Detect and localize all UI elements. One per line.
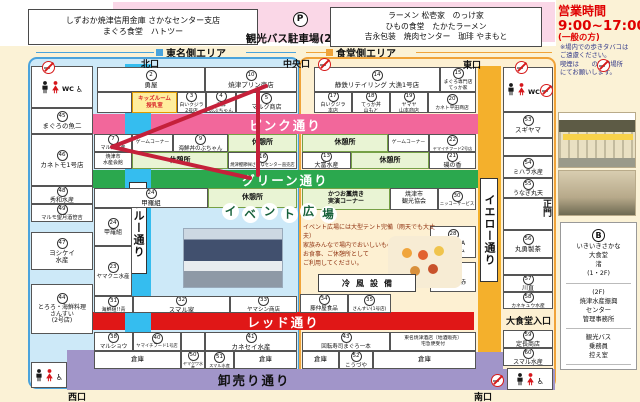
shop-number: 14 bbox=[372, 70, 383, 81]
rest-area-cell: 休憩所 bbox=[228, 134, 297, 152]
no-smoking-icon bbox=[515, 61, 528, 74]
shop-label: 倉庫 bbox=[259, 356, 272, 363]
orange-square-icon bbox=[326, 49, 333, 56]
shop-number: 60 bbox=[523, 348, 534, 359]
shop-label: 宅急便受付 bbox=[421, 342, 445, 347]
street-yellow: イエロー通り bbox=[478, 66, 501, 352]
shop-number: 52 bbox=[351, 351, 362, 362]
shop-cell: 24甲羅組 bbox=[94, 208, 132, 246]
building-photo-2 bbox=[558, 170, 636, 216]
shop-number: 2 bbox=[146, 70, 157, 81]
shop-cell: 倉庫 bbox=[234, 351, 297, 369]
shop-label: さんすい(1号店) bbox=[353, 307, 387, 312]
shop-cell: 焼津市水産会館 bbox=[94, 152, 132, 169]
shop-cell bbox=[97, 92, 132, 113]
shop-cell: 56丸勇製茶 bbox=[503, 230, 553, 258]
hours-time: 9:00~17:00 bbox=[558, 19, 640, 35]
directory-line: センター bbox=[566, 306, 631, 315]
shop-cell: 46カネトモ1号店 bbox=[31, 134, 93, 186]
shop-label: まぐろの魚二 bbox=[43, 123, 82, 130]
shop-cell: 19ヤマヤ山本商店 bbox=[390, 92, 428, 113]
shop-number: 43 bbox=[341, 332, 352, 343]
shop-cell: 34藤仲屋食品 bbox=[300, 294, 348, 313]
wc-label: WC bbox=[528, 89, 540, 96]
hours-note: (一般の方) bbox=[558, 34, 640, 44]
shop-number: 19 bbox=[404, 92, 415, 102]
shop-number: 51 bbox=[214, 352, 225, 363]
wc-cell: WC♿ bbox=[31, 66, 93, 108]
rest-area-cell: 休憩所 bbox=[208, 188, 297, 208]
shop-cell: 47ヨシケイ水産 bbox=[31, 232, 93, 270]
shop-label: 2号店 bbox=[185, 109, 198, 114]
shop-label: 焼津プリン商店 bbox=[228, 82, 274, 89]
shop-label: ゲームコーナー bbox=[136, 140, 169, 145]
cooling-equipment-box: 冷風設備 bbox=[318, 274, 416, 292]
event-title-char: イ bbox=[222, 203, 239, 220]
event-title-char: ベ bbox=[242, 206, 259, 223]
directory-line: 観光バス bbox=[566, 333, 631, 342]
facility-directory-box: B いきいきさかな大食堂渚(1・2F) (2F)焼津水産振興センター管理事務所 … bbox=[560, 222, 637, 370]
bank-line: しずおか焼津信用金庫 さかなセンター支店 bbox=[66, 16, 220, 27]
shop-number: 50 bbox=[188, 351, 199, 361]
shop-label: 甲羅組 bbox=[141, 200, 161, 207]
shop-label: ミハラ水産 bbox=[513, 170, 543, 177]
shop-label: マルショウ bbox=[100, 344, 128, 350]
shop-number: 20 bbox=[447, 94, 458, 105]
restaurants-box: ラーメン 松壱家 のっけ家 ひもの食堂 たかたラーメン 吉永包装 焼肉センター … bbox=[330, 7, 542, 47]
extra-label: 大食堂入口 bbox=[506, 314, 551, 327]
street-wholesale: 卸売り通り bbox=[118, 369, 555, 390]
event-stage-photo bbox=[183, 228, 283, 288]
shop-label: スマル家 bbox=[169, 307, 195, 313]
rest-area-cell: 休憩所 bbox=[302, 134, 388, 152]
shop-cell: 16焼津鰹節㈱さかなセンター直売店 bbox=[228, 152, 297, 169]
shop-number: 23 bbox=[108, 262, 119, 273]
directory-line: (2F) bbox=[566, 288, 631, 297]
shop-number: 16 bbox=[257, 152, 268, 163]
shop-number: 56 bbox=[523, 234, 534, 245]
directory-restaurant: いきいきさかな大食堂渚(1・2F) bbox=[566, 242, 631, 284]
divider bbox=[416, 52, 552, 53]
shop-label: スマル水産 bbox=[209, 364, 230, 369]
shop-label: ヤマイチフード2号店 bbox=[433, 147, 472, 152]
shop-label: 本店 bbox=[328, 109, 338, 114]
shop-cell bbox=[181, 332, 205, 351]
shop-cell: 21磯の香 bbox=[429, 152, 476, 169]
shop-cell: 50ヤマクワ水産 bbox=[181, 351, 205, 369]
directory-line: 大食堂 bbox=[566, 251, 631, 260]
no-smoking-icon bbox=[42, 61, 55, 74]
shop-label: 倉庫 bbox=[418, 356, 431, 363]
divider bbox=[246, 52, 296, 53]
shop-cell: 5マルク商店 bbox=[236, 92, 297, 113]
shop-cell: 32スマル家 bbox=[133, 296, 230, 313]
directory-office: (2F)焼津水産振興センター管理事務所 bbox=[566, 288, 631, 330]
shop-label: 水産 bbox=[56, 257, 69, 264]
shop-cell: 31海鮮組!!青 bbox=[94, 296, 133, 313]
shop-cell: ゲームコーナー bbox=[388, 134, 429, 152]
parking-icon: P bbox=[293, 12, 308, 27]
shop-cell: 東名焼津酒店〔地酒販売〕宅急便受付 bbox=[390, 332, 476, 351]
shop-label: うなぎ丸天 bbox=[513, 191, 543, 198]
shop-cell: 倉庫 bbox=[302, 351, 339, 369]
shop-number: 13 bbox=[321, 152, 332, 162]
shop-number: 34 bbox=[319, 294, 330, 305]
shop-label: マル海水産 bbox=[100, 146, 125, 152]
shop-cell: 35さんすい(1号店) bbox=[348, 294, 391, 313]
shop-label: カネト平田商店 bbox=[435, 106, 469, 111]
shop-label: (2号店) bbox=[52, 318, 73, 325]
wc-cell: ♿ bbox=[507, 368, 553, 390]
toilet-icons: ♿ bbox=[516, 373, 544, 386]
directory-line: 管理事務所 bbox=[566, 315, 631, 324]
shop-label: ゲームコーナー bbox=[392, 140, 425, 145]
shop-label: スマル水産 bbox=[513, 360, 543, 366]
shop-label: 丸勇製茶 bbox=[515, 246, 541, 253]
shop-number: 48 bbox=[57, 186, 68, 197]
divider bbox=[36, 52, 154, 53]
shop-number: 44 bbox=[57, 293, 68, 304]
rest-area-cell: 休憩所 bbox=[351, 152, 429, 169]
gate-label-南口: 南口 bbox=[474, 390, 492, 402]
shop-number: 59 bbox=[523, 330, 534, 341]
directory-line: いきいきさかな bbox=[566, 242, 631, 251]
shop-cell: 23ヤマクニ水産 bbox=[94, 246, 132, 296]
shop-cell: 22ヤマイチフード2号店 bbox=[429, 134, 476, 152]
shop-number: 7 bbox=[108, 134, 119, 145]
no-smoking-icon bbox=[491, 374, 504, 387]
shop-cell: 20カネト平田商店 bbox=[428, 92, 476, 113]
shop-number: 45 bbox=[57, 111, 68, 122]
shop-label: ニッコーサービス bbox=[440, 203, 474, 208]
shop-label: ヤマクワ水産 bbox=[182, 362, 204, 369]
shop-cell: 10焼津プリン商店 bbox=[205, 67, 297, 92]
shop-cell: 30ニッコーサービス bbox=[438, 188, 476, 210]
shop-cell: 60スマル水産 bbox=[503, 348, 553, 366]
shop-label: 勇屋 bbox=[145, 82, 158, 89]
shop-label: 実演コーナー bbox=[328, 199, 364, 206]
shop-cell: 41カネセイ水産 bbox=[205, 332, 297, 351]
shop-cell: 59定長商店 bbox=[503, 330, 553, 348]
shop-number: 49 bbox=[57, 204, 68, 215]
directory-line: 焼津水産振興 bbox=[566, 297, 631, 306]
shop-label: 観光協会 bbox=[402, 199, 426, 206]
sakana-center-floor-map: しずおか焼津信用金庫 さかなセンター支店 まぐろ食堂 ハトツー P 観光バス駐車… bbox=[0, 0, 640, 402]
shop-label: こうづや bbox=[345, 363, 367, 369]
shop-number: 30 bbox=[452, 191, 463, 202]
shop-cell: 40ヤマイチフード1号店 bbox=[133, 332, 181, 351]
shop-label: 休憩所 bbox=[380, 157, 401, 165]
shop-cell: 38マルショウ bbox=[94, 332, 133, 351]
shop-cell: 48秀和水産 bbox=[31, 186, 93, 204]
shop-number: 35 bbox=[364, 295, 375, 306]
shop-number: 47 bbox=[57, 238, 68, 249]
shop-label: 山本商店 bbox=[399, 109, 419, 114]
shop-label: 休憩所 bbox=[252, 139, 273, 147]
shop-cell: 13大富水産 bbox=[302, 152, 351, 169]
gate-label-正門: 正門 bbox=[540, 199, 553, 217]
shop-number: 24 bbox=[108, 218, 119, 229]
shop-number: 4 bbox=[216, 92, 227, 102]
shop-label: 倉庫 bbox=[131, 356, 144, 363]
shop-number: 21 bbox=[447, 152, 458, 162]
shop-label: 藤仲屋食品 bbox=[310, 306, 338, 312]
rest-area-cell: 休憩所 bbox=[132, 152, 228, 169]
shop-cell bbox=[503, 258, 553, 275]
shop-number: 18 bbox=[366, 92, 377, 102]
shop-cell: 49マルモ望月酒笹吉 bbox=[31, 204, 93, 222]
shop-cell: 17白いクジラ本店 bbox=[314, 92, 352, 113]
shop-cell: キッズルーム授乳室 bbox=[132, 92, 177, 113]
shop-label: 静鉄リテイリング 大漁1号店 bbox=[335, 82, 419, 89]
toilet-icons: WC♿ bbox=[41, 81, 83, 94]
shop-cell: 7マル海水産 bbox=[94, 134, 132, 152]
no-smoking-icon bbox=[318, 58, 331, 71]
gate-label-東口: 東口 bbox=[463, 58, 481, 71]
shop-number: 57 bbox=[523, 275, 534, 285]
directory-line: (1・2F) bbox=[566, 269, 631, 278]
shop-cell: 倉庫 bbox=[94, 351, 181, 369]
shop-cell: 焼津市観光協会 bbox=[390, 188, 438, 210]
shop-cell: 52こうづや bbox=[339, 351, 373, 369]
shop-number: 10 bbox=[246, 70, 257, 81]
shop-number: 32 bbox=[176, 296, 187, 306]
shop-label: 倉庫 bbox=[314, 356, 327, 363]
shop-cell: 24甲羅組 bbox=[94, 188, 208, 208]
shop-label: 休憩所 bbox=[170, 157, 191, 165]
no-smoking-icon bbox=[540, 84, 553, 97]
shop-number: 33 bbox=[258, 296, 269, 306]
event-title-char: ト bbox=[281, 206, 298, 223]
shop-label: マルク商店 bbox=[251, 105, 281, 112]
shop-number: 24 bbox=[146, 188, 157, 199]
shop-number: 3 bbox=[186, 92, 197, 102]
shop-cell: 55うなぎ丸天 bbox=[503, 178, 553, 198]
wc-cell: ♿ bbox=[31, 362, 67, 388]
shop-cell: 45まぐろの魚二 bbox=[31, 108, 93, 134]
shop-label: 授乳室 bbox=[146, 103, 163, 109]
shop-label: 焼津鰹節㈱さかなセンター直売店 bbox=[230, 164, 294, 169]
event-title-char: 広 bbox=[300, 203, 317, 220]
directory-line: 渚 bbox=[566, 260, 631, 269]
wheelchair-icon: ♿ bbox=[76, 86, 83, 94]
shop-number: 17 bbox=[328, 92, 339, 102]
photo-roof bbox=[559, 120, 635, 132]
wheelchair-icon: ♿ bbox=[537, 378, 544, 386]
shop-label: 山もと bbox=[364, 109, 379, 114]
photo-sign bbox=[563, 134, 633, 140]
shop-number: 9 bbox=[195, 134, 206, 145]
toilet-icons: ♿ bbox=[35, 369, 63, 382]
shop-label: のぶちゃん bbox=[209, 109, 233, 114]
event-title-char: 場 bbox=[320, 206, 337, 223]
shop-label: 水産会館 bbox=[103, 161, 123, 167]
shop-cell: 18てっか丼山もと bbox=[352, 92, 390, 113]
shop-cell: 57川直 bbox=[503, 275, 553, 292]
restaurants-line: 吉永包装 焼肉センター 珈琲 やまもと bbox=[365, 32, 508, 43]
shop-label: 磯の香 bbox=[443, 163, 461, 169]
shop-label: 回転寿司まぐろ一本 bbox=[321, 344, 371, 350]
shop-number: 53 bbox=[523, 115, 534, 126]
shop-cell: 54ミハラ水産 bbox=[503, 156, 553, 178]
opening-hours: 営業時間 9:00~17:00 (一般の方) bbox=[558, 5, 640, 44]
shop-number: 41 bbox=[246, 332, 257, 343]
shop-cell: 33ヤマシン商店 bbox=[230, 296, 297, 313]
shop-label: 甲羅組 bbox=[104, 230, 122, 237]
shop-label: 大富水産 bbox=[314, 163, 338, 169]
shop-cell: 倉庫 bbox=[373, 351, 476, 369]
gate-label-北口: 北口 bbox=[141, 57, 159, 70]
shop-number: 40 bbox=[152, 333, 163, 344]
shop-number: 15 bbox=[453, 68, 464, 79]
shop-number: 55 bbox=[523, 179, 534, 190]
shop-label: ヤマクニ水産 bbox=[96, 274, 129, 280]
shop-label: スギヤマ bbox=[515, 127, 541, 134]
shop-number: 22 bbox=[447, 135, 458, 146]
street-yellow-label: イエロー通り bbox=[480, 178, 498, 282]
restaurants-line: ひもの食堂 たかたラーメン bbox=[385, 22, 486, 33]
divider bbox=[306, 52, 326, 53]
shop-cell: 3白いクジラ2号店 bbox=[177, 92, 206, 113]
shop-label: カネトモ1号店 bbox=[40, 162, 83, 169]
directory-bus-room: 観光バス乗務員控え室 bbox=[566, 333, 631, 365]
shop-cell: 53スギヤマ bbox=[503, 112, 553, 138]
shop-number: 46 bbox=[57, 150, 68, 161]
shop-cell: 4海鮮のぶちゃん bbox=[206, 92, 236, 113]
shop-cell: 51スマル水産 bbox=[205, 351, 234, 369]
shop-cell: 44とろろ・海鮮料理さんすい(2号店) bbox=[31, 284, 93, 334]
shop-number: 5 bbox=[261, 93, 272, 104]
street-wholesale-label: 卸売り通り bbox=[118, 369, 640, 390]
hours-title: 営業時間 bbox=[558, 5, 640, 19]
shop-cell: 58カネキュウ水産 bbox=[503, 292, 553, 309]
shop-label: てっか家 bbox=[449, 86, 468, 91]
building-photo bbox=[558, 112, 636, 168]
shop-cell: 14静鉄リテイリング 大漁1号店 bbox=[314, 67, 440, 92]
shop-label: 海鮮組!!青 bbox=[101, 308, 125, 313]
directory-line: 控え室 bbox=[566, 351, 631, 360]
event-title-char: ン bbox=[261, 203, 278, 220]
shop-cell bbox=[503, 138, 553, 156]
no-smoking-icon bbox=[597, 59, 610, 72]
shop-label: カネセイ水産 bbox=[232, 344, 271, 351]
shop-cell: 2勇屋 bbox=[97, 67, 205, 92]
shop-cell: 43回転寿司まぐろ一本 bbox=[302, 332, 390, 351]
bank-line: まぐろ食堂 ハトツー bbox=[103, 27, 183, 38]
gate-label-中央口: 中央口 bbox=[283, 57, 310, 70]
shop-number: 54 bbox=[523, 158, 534, 169]
shop-label: 休憩所 bbox=[335, 139, 356, 147]
bank-shops-box: しずおか焼津信用金庫 さかなセンター支店 まぐろ食堂 ハトツー bbox=[28, 9, 258, 45]
shop-number: 31 bbox=[108, 296, 119, 307]
shop-label: マルモ望月酒笹吉 bbox=[41, 216, 83, 222]
shop-label: カネキュウ水産 bbox=[511, 304, 545, 309]
shop-label: ヤマシン商店 bbox=[247, 307, 280, 313]
shop-cell: ゲームコーナー bbox=[132, 134, 173, 152]
shop-cell: 9海鮮丼のぶちゃん bbox=[173, 134, 228, 152]
shop-number: 58 bbox=[523, 292, 534, 303]
gate-label-西口: 西口 bbox=[68, 390, 86, 402]
blue-square-icon bbox=[156, 49, 163, 56]
wheelchair-icon: ♿ bbox=[56, 374, 63, 382]
restaurant-b-icon: B bbox=[592, 229, 605, 242]
photo-base bbox=[559, 158, 635, 167]
wc-label: WC bbox=[62, 86, 74, 93]
restaurants-line: ラーメン 松壱家 のっけ家 bbox=[388, 11, 484, 22]
directory-line: 乗務員 bbox=[566, 342, 631, 351]
shop-label: ヤマイチフード1号店 bbox=[136, 345, 177, 350]
shop-number: 38 bbox=[108, 332, 119, 343]
shop-label: 休憩所 bbox=[242, 194, 263, 202]
